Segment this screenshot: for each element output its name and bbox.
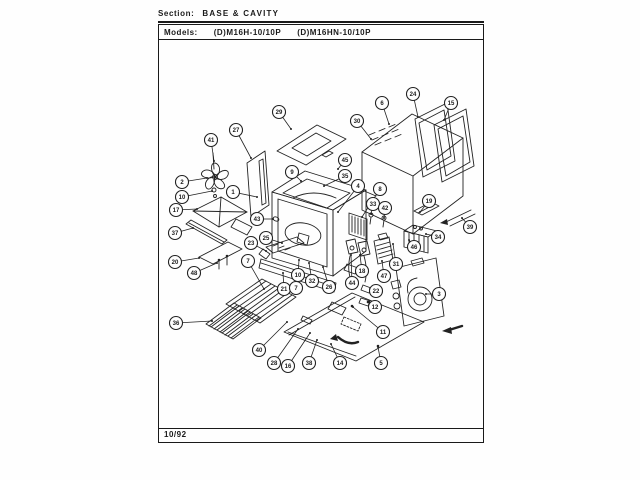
svg-text:36: 36 bbox=[173, 321, 180, 327]
svg-text:41: 41 bbox=[208, 138, 215, 144]
svg-text:25: 25 bbox=[263, 236, 270, 242]
svg-text:20: 20 bbox=[172, 260, 179, 266]
svg-text:31: 31 bbox=[393, 262, 400, 268]
svg-text:35: 35 bbox=[342, 174, 349, 180]
callout-layer: 4121017372048362712994325237217103226453… bbox=[169, 88, 477, 373]
direction-arrow bbox=[442, 326, 462, 334]
svg-text:10: 10 bbox=[295, 273, 302, 279]
svg-text:38: 38 bbox=[306, 361, 313, 367]
svg-text:16: 16 bbox=[285, 364, 292, 370]
svg-text:42: 42 bbox=[382, 206, 389, 212]
callout-6: 6 bbox=[376, 97, 391, 126]
svg-text:28: 28 bbox=[271, 361, 278, 367]
callout-31: 31 bbox=[390, 243, 403, 271]
part-fan-bracket bbox=[193, 197, 252, 235]
callout-30: 30 bbox=[351, 115, 373, 141]
service-manual-page: Section:BASE & CAVITY Models: (D)M16H-10… bbox=[0, 0, 640, 480]
svg-text:48: 48 bbox=[191, 271, 198, 277]
svg-text:26: 26 bbox=[326, 285, 333, 291]
callout-39: 39 bbox=[461, 217, 477, 234]
callout-48: 48 bbox=[188, 262, 219, 280]
callout-25: 25 bbox=[260, 232, 284, 245]
part-outer-wrapper bbox=[362, 114, 463, 234]
svg-text:29: 29 bbox=[276, 110, 283, 116]
svg-text:33: 33 bbox=[370, 202, 377, 208]
svg-text:43: 43 bbox=[254, 217, 261, 223]
svg-text:44: 44 bbox=[349, 281, 356, 287]
svg-text:18: 18 bbox=[359, 269, 366, 275]
callout-17: 17 bbox=[170, 204, 199, 217]
callout-24: 24 bbox=[407, 88, 420, 119]
callout-41: 41 bbox=[205, 134, 218, 163]
part-screws bbox=[369, 213, 386, 227]
part-magnetron bbox=[374, 233, 393, 264]
svg-text:14: 14 bbox=[337, 361, 344, 367]
svg-text:47: 47 bbox=[381, 274, 388, 280]
callout-19: 19 bbox=[419, 195, 436, 214]
svg-text:46: 46 bbox=[411, 245, 418, 251]
svg-text:19: 19 bbox=[426, 199, 433, 205]
callout-32: 32 bbox=[306, 262, 319, 288]
callout-26: 26 bbox=[322, 266, 336, 294]
svg-text:24: 24 bbox=[410, 92, 417, 98]
svg-text:10: 10 bbox=[179, 195, 186, 201]
callout-36: 36 bbox=[170, 317, 214, 330]
svg-text:32: 32 bbox=[309, 279, 316, 285]
callout-2: 2 bbox=[176, 176, 209, 189]
callout-21: 21 bbox=[278, 272, 291, 296]
svg-text:27: 27 bbox=[233, 128, 240, 134]
svg-text:37: 37 bbox=[172, 231, 179, 237]
callout-9: 9 bbox=[286, 166, 303, 183]
callout-29: 29 bbox=[273, 106, 293, 131]
part-base-plate bbox=[284, 293, 424, 361]
callout-3: 3 bbox=[425, 288, 446, 301]
part-fan-blade bbox=[200, 153, 228, 198]
svg-text:23: 23 bbox=[248, 241, 255, 247]
part-shelf-tray bbox=[199, 242, 242, 269]
part-back-panel-inner bbox=[415, 103, 455, 177]
callout-22: 22 bbox=[369, 285, 383, 298]
callout-1: 1 bbox=[227, 186, 259, 199]
callout-10: 10 bbox=[292, 259, 305, 282]
svg-text:40: 40 bbox=[256, 348, 263, 354]
svg-text:22: 22 bbox=[373, 289, 380, 295]
part-angle-bracket bbox=[186, 220, 227, 244]
svg-text:17: 17 bbox=[173, 208, 180, 214]
svg-text:15: 15 bbox=[448, 101, 455, 107]
svg-text:39: 39 bbox=[467, 225, 474, 231]
callout-10: 10 bbox=[176, 190, 214, 204]
svg-text:45: 45 bbox=[342, 158, 349, 164]
callout-45: 45 bbox=[337, 154, 352, 171]
part-side-panel bbox=[247, 151, 269, 217]
svg-text:11: 11 bbox=[380, 330, 387, 336]
callout-43: 43 bbox=[251, 213, 275, 226]
svg-text:12: 12 bbox=[372, 305, 379, 311]
callout-4: 4 bbox=[337, 180, 365, 214]
callout-33: 33 bbox=[367, 198, 380, 216]
part-top-cover bbox=[277, 125, 346, 165]
callout-37: 37 bbox=[169, 227, 195, 240]
exploded-parts-diagram: 4121017372048362712994325237217103226453… bbox=[0, 0, 640, 480]
callout-12: 12 bbox=[368, 301, 382, 314]
svg-text:21: 21 bbox=[281, 287, 288, 293]
svg-text:30: 30 bbox=[354, 119, 361, 125]
part-back-panel-outer bbox=[434, 109, 474, 182]
callout-38: 38 bbox=[303, 339, 319, 370]
svg-text:34: 34 bbox=[435, 235, 442, 241]
callout-27: 27 bbox=[230, 124, 253, 160]
